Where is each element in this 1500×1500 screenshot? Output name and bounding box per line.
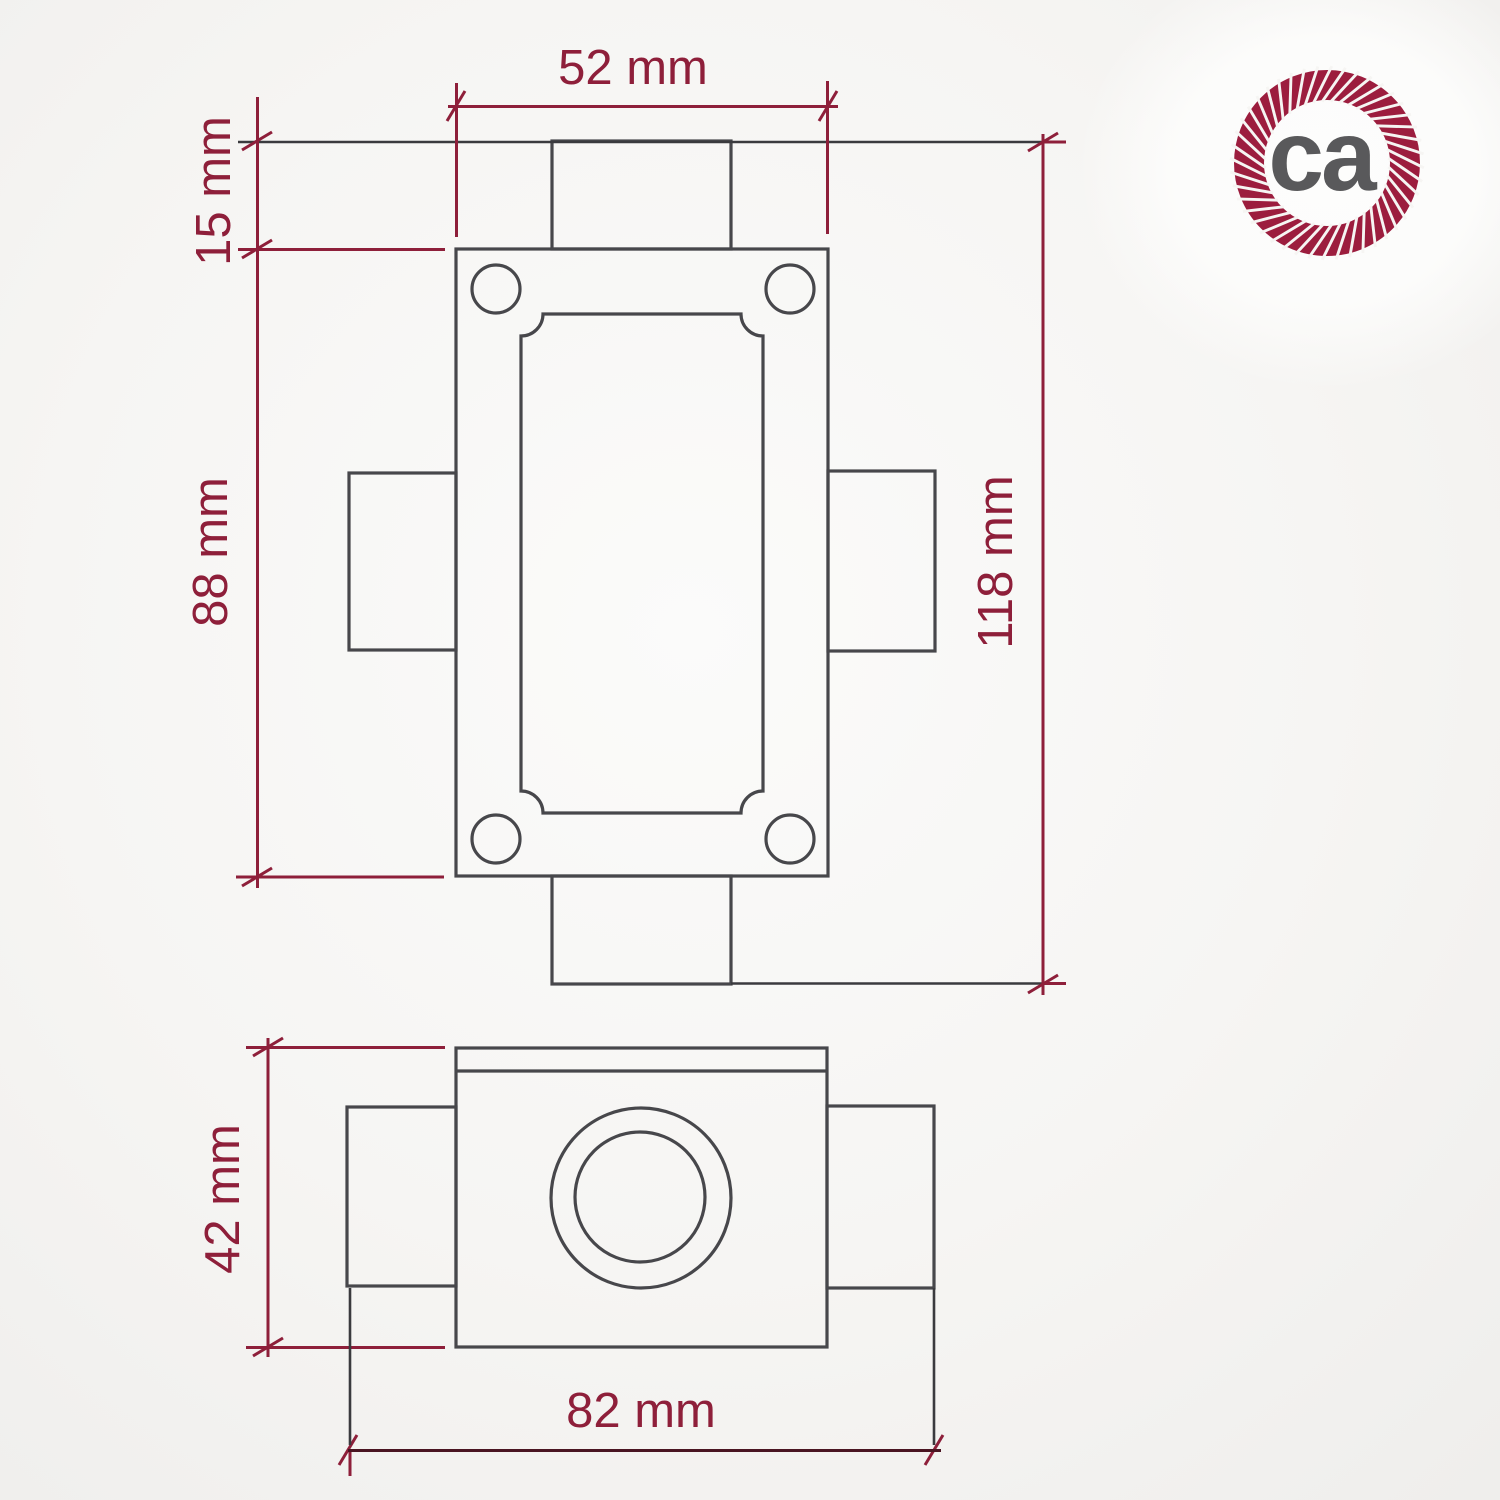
svg-text:ca: ca (1268, 100, 1378, 212)
svg-text:88 mm: 88 mm (184, 477, 238, 627)
svg-text:82 mm: 82 mm (566, 1384, 716, 1438)
svg-text:15 mm: 15 mm (187, 116, 241, 266)
svg-text:42 mm: 42 mm (196, 1124, 250, 1274)
svg-text:118 mm: 118 mm (969, 475, 1023, 648)
svg-text:52 mm: 52 mm (558, 41, 708, 95)
